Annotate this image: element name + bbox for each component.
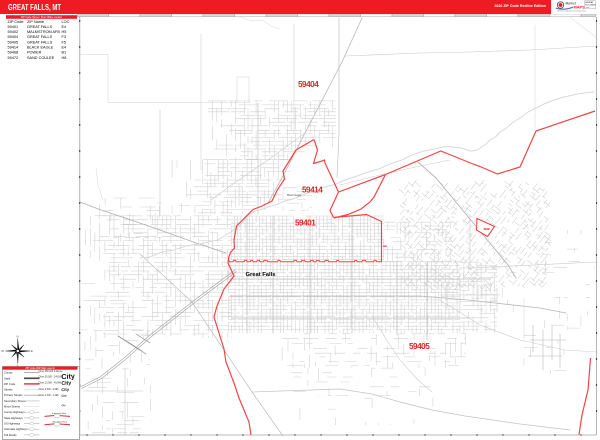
svg-text:Streets: Streets (4, 388, 13, 392)
svg-text:Cities 10,000 - 49,999: Cities 10,000 - 49,999 (39, 381, 62, 384)
svg-text:Secondary Streets: Secondary Streets (4, 399, 27, 403)
svg-text:Cities 250,000 & Above: Cities 250,000 & Above (39, 370, 64, 373)
svg-text:Cities 2,500 - 9,999: Cities 2,500 - 9,999 (39, 388, 60, 391)
svg-text:City: City (61, 393, 67, 397)
svg-text:County Highways: County Highways (4, 410, 26, 414)
svg-text:County: County (4, 371, 13, 375)
svg-text:Cities 50,000 - 249,999: Cities 50,000 - 249,999 (39, 376, 63, 379)
svg-text:City: City (61, 387, 70, 393)
svg-text:Minor Streets: Minor Streets (4, 405, 21, 409)
svg-text:Primary Streets: Primary Streets (4, 393, 23, 397)
svg-text:Cities 1,000 - 2,499: Cities 1,000 - 2,499 (39, 394, 60, 397)
svg-text:State: State (4, 376, 11, 380)
svg-text:Toll Roads: Toll Roads (4, 433, 17, 437)
svg-text:US Highways: US Highways (4, 422, 21, 426)
svg-text:State Highways: State Highways (4, 416, 23, 420)
svg-text:ZIP Code Wall Map Legend: ZIP Code Wall Map Legend (25, 367, 55, 370)
svg-text:City: City (61, 404, 66, 407)
svg-text:ZIP Code: ZIP Code (4, 382, 16, 386)
